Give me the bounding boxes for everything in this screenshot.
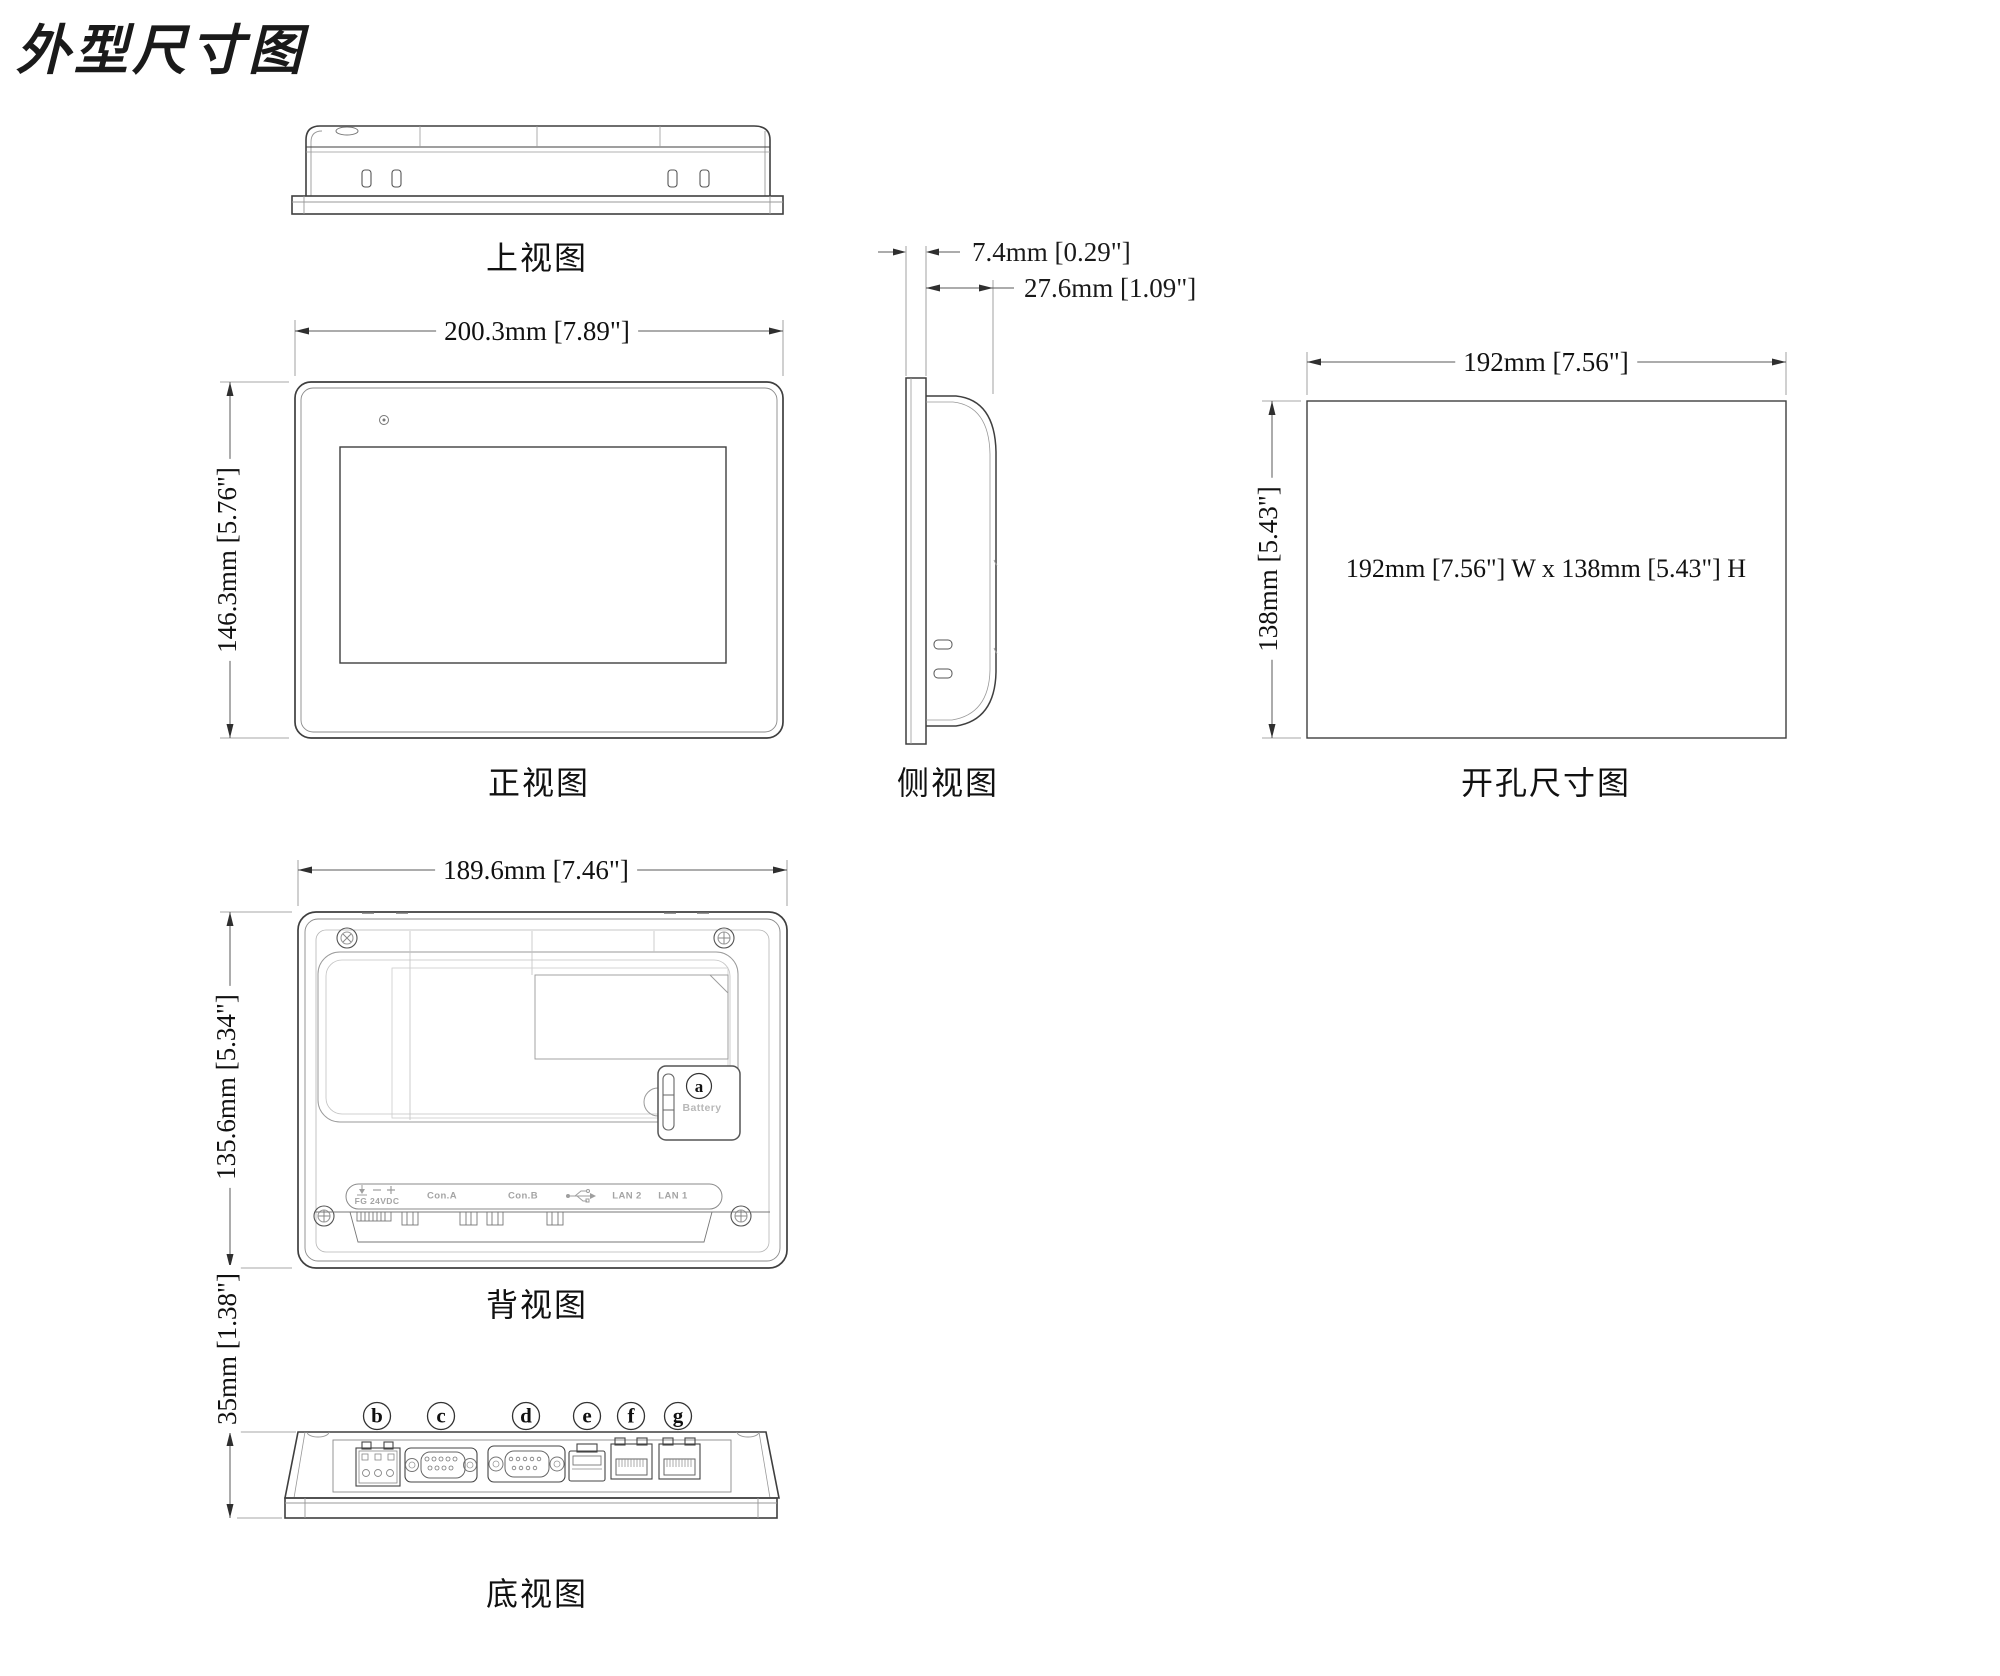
- com-b-port-label: Con.B: [508, 1191, 538, 1202]
- cutout-view-label: 开孔尺寸图: [1461, 758, 1631, 804]
- marker-f: f: [628, 1404, 635, 1429]
- cutout-view-dimensions: [1262, 352, 1786, 738]
- side-view-label: 侧视图: [897, 758, 999, 804]
- back-view-drawing: [298, 912, 787, 1268]
- battery-label: Battery: [683, 1102, 722, 1114]
- marker-g: g: [673, 1404, 684, 1429]
- com-a-port-label: Con.A: [427, 1191, 457, 1202]
- bottom-height-dimension: 35mm [1.38"]: [213, 1265, 241, 1433]
- cutout-size-note: 192mm [7.56"] W x 138mm [5.43"] H: [1346, 554, 1746, 584]
- screw-icon: [337, 928, 357, 948]
- battery-marker: a: [695, 1077, 704, 1097]
- lan2-port-label: LAN 2: [612, 1191, 641, 1202]
- screw-icon: [314, 1206, 334, 1226]
- marker-d: d: [520, 1404, 532, 1429]
- marker-e: e: [582, 1404, 591, 1429]
- latch-icon: [336, 127, 358, 135]
- power-port-label: FG 24VDC: [355, 1196, 400, 1206]
- side-body-depth-dimension: 27.6mm [1.09"]: [1020, 274, 1200, 302]
- side-view-drawing: [906, 378, 997, 744]
- top-view-label: 上视图: [486, 233, 588, 279]
- power-connector: [356, 1442, 400, 1486]
- side-bezel-depth-dimension: 7.4mm [0.29"]: [968, 238, 1135, 266]
- lan2-connector: [611, 1438, 652, 1479]
- side-view-dimensions: [878, 246, 1014, 394]
- bottom-view-label: 底视图: [486, 1569, 588, 1615]
- com-a-connector: [405, 1448, 477, 1482]
- cutout-width-dimension: 192mm [7.56"]: [1455, 348, 1637, 376]
- display-area: [340, 447, 726, 663]
- top-view-drawing: [292, 126, 783, 214]
- lan1-connector: [659, 1438, 700, 1479]
- usb-connector: [569, 1444, 605, 1481]
- front-height-dimension: 146.3mm [5.76"]: [213, 459, 241, 661]
- lan1-port-label: LAN 1: [658, 1191, 687, 1202]
- back-view-label: 背视图: [486, 1280, 588, 1326]
- marker-c: c: [436, 1404, 445, 1429]
- screw-icon: [714, 928, 734, 948]
- front-view-label: 正视图: [488, 758, 590, 804]
- front-width-dimension: 200.3mm [7.89"]: [436, 317, 638, 345]
- page-title: 外型尺寸图: [16, 6, 306, 85]
- cutout-height-dimension: 138mm [5.43"]: [1254, 478, 1282, 660]
- com-b-connector: [488, 1446, 565, 1482]
- marker-b: b: [371, 1404, 383, 1429]
- back-height-dimension: 135.6mm [5.34"]: [212, 986, 240, 1188]
- screw-icon: [731, 1206, 751, 1226]
- dimension-drawing-page: 外型尺寸图 上视图 正视图 侧视图 开孔尺寸图 背视图 底视图 200.3mm …: [0, 0, 2000, 1676]
- front-view-drawing: [295, 382, 783, 738]
- back-width-dimension: 189.6mm [7.46"]: [435, 856, 637, 884]
